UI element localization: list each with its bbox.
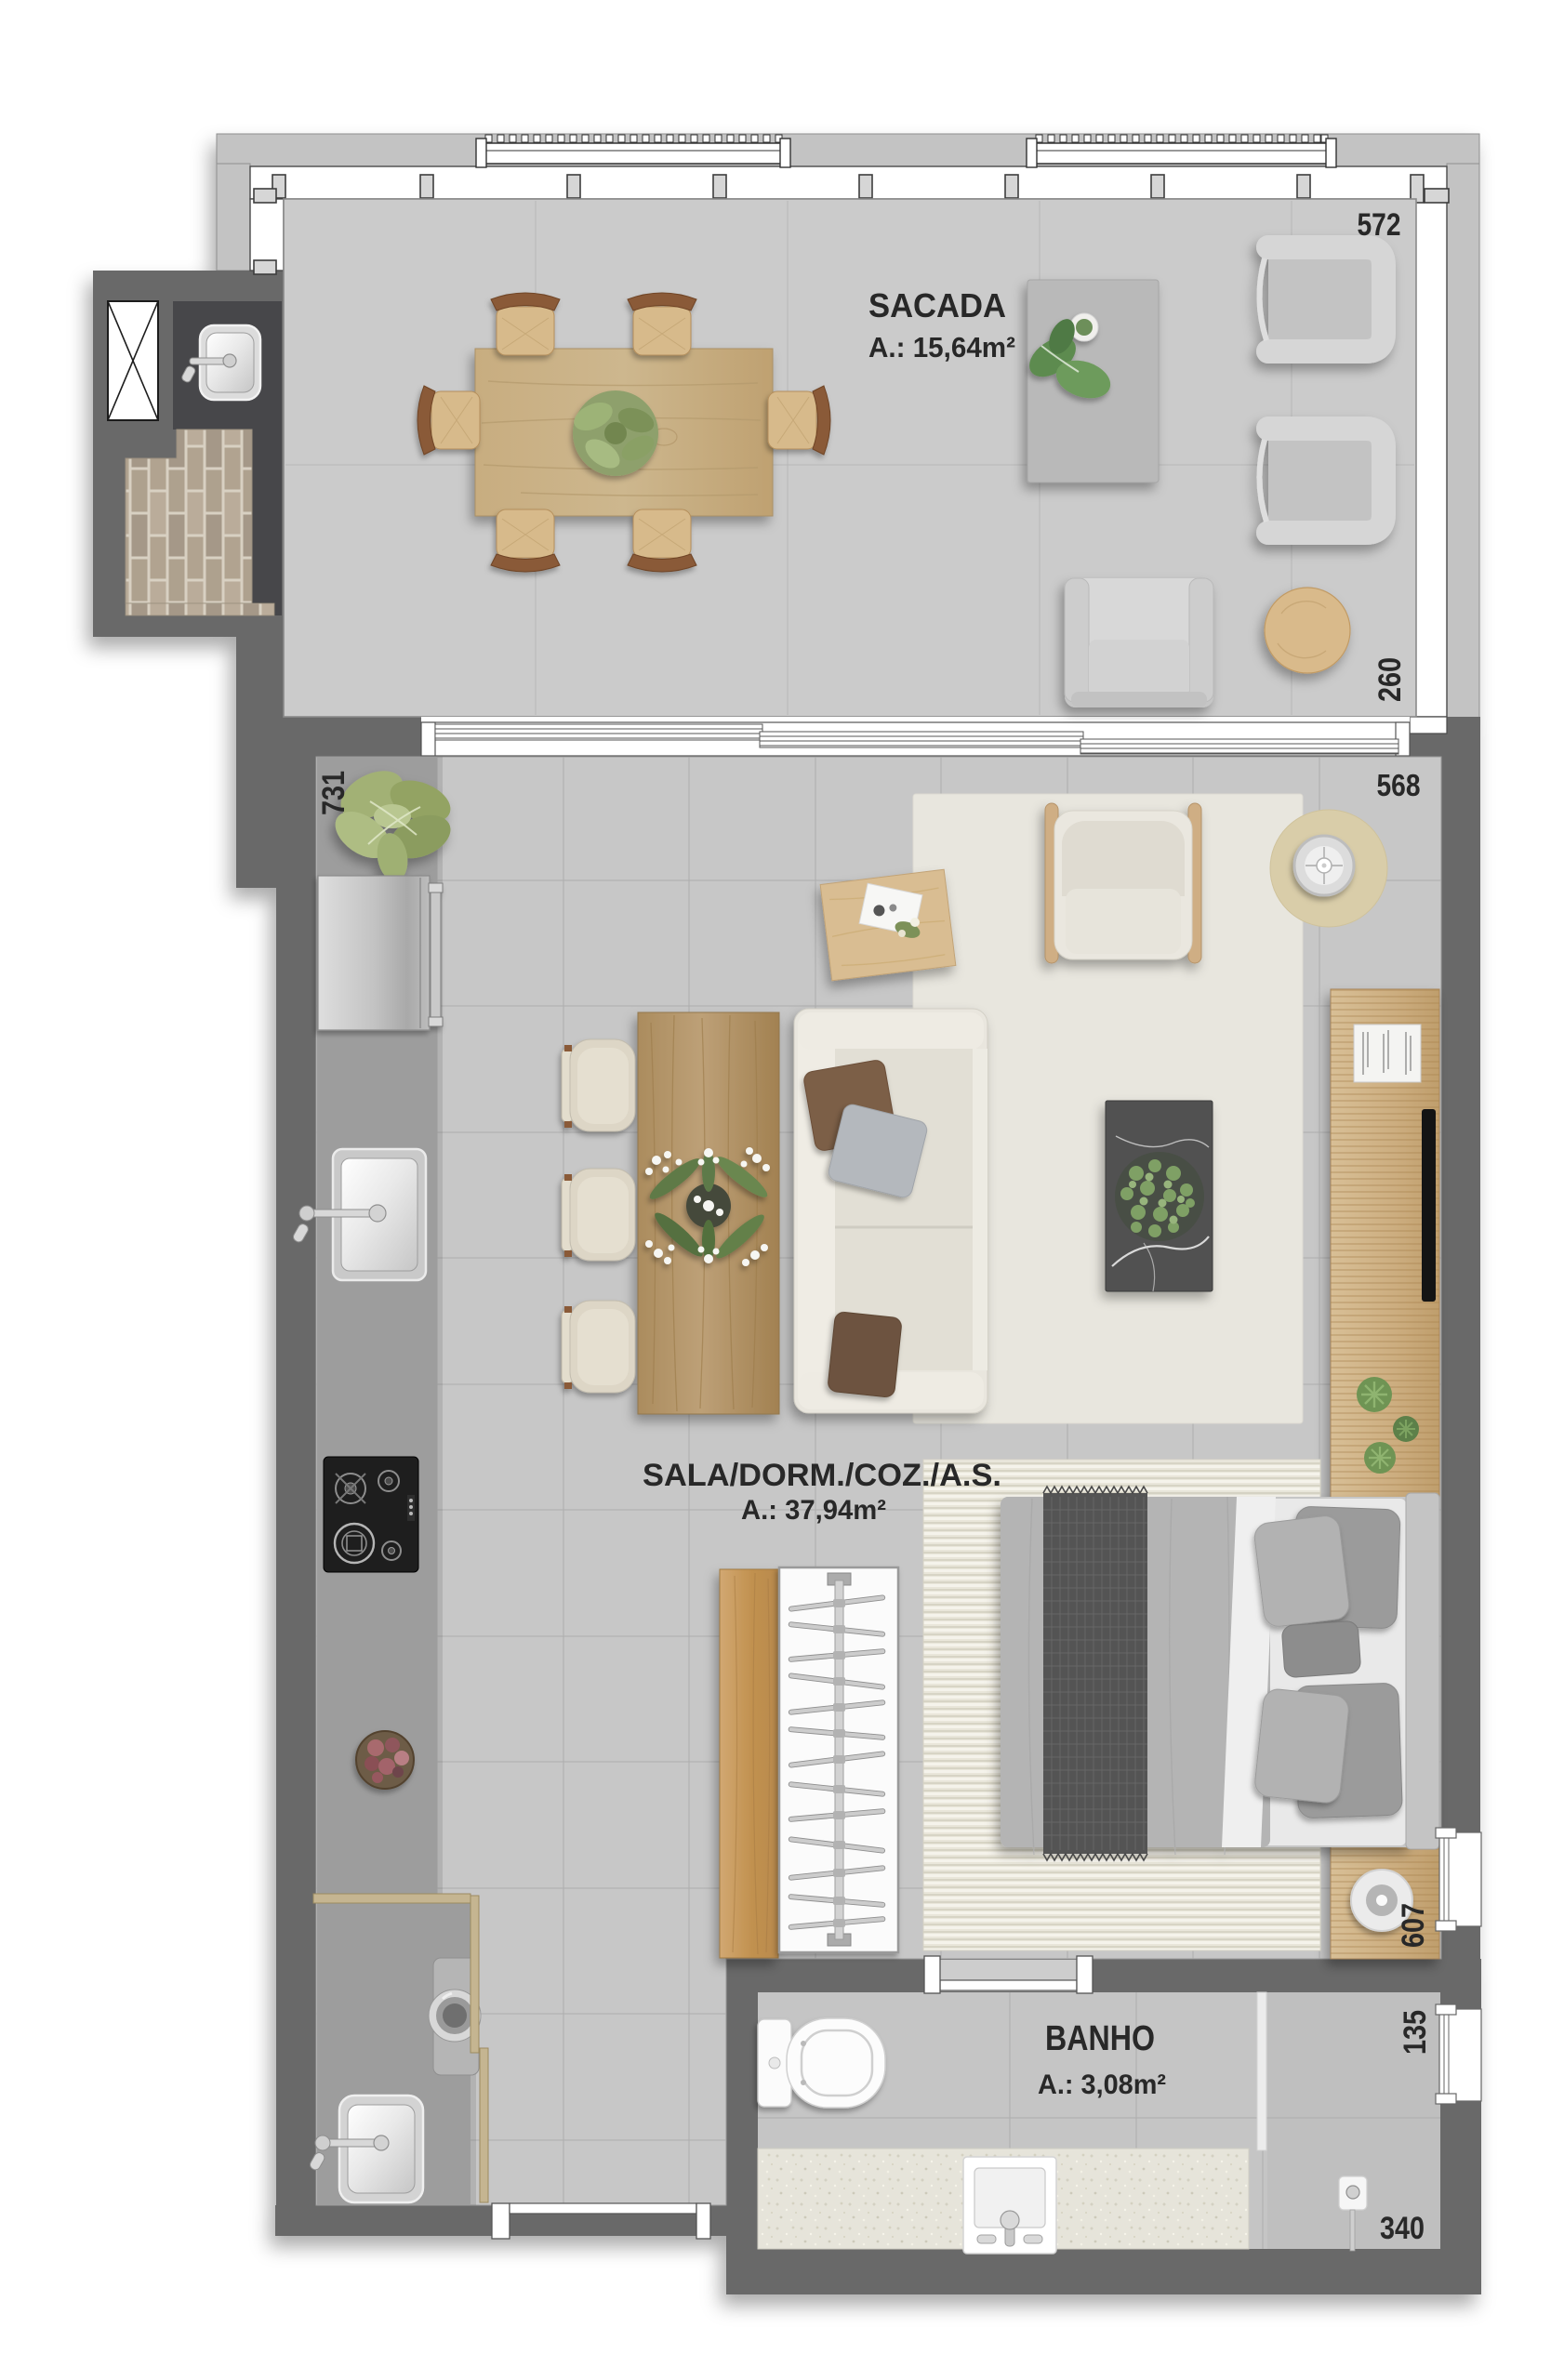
svg-text:572: 572 <box>1358 207 1401 243</box>
svg-text:SALA/DORM./COZ./A.S.: SALA/DORM./COZ./A.S. <box>643 1458 1001 1493</box>
svg-text:BANHO: BANHO <box>1045 2019 1155 2058</box>
svg-text:340: 340 <box>1380 2211 1425 2246</box>
svg-text:260: 260 <box>1372 657 1408 702</box>
svg-text:568: 568 <box>1377 768 1421 802</box>
svg-text:A.: 15,64m²: A.: 15,64m² <box>868 331 1015 364</box>
svg-text:A.: 3,08m²: A.: 3,08m² <box>1038 2069 1166 2100</box>
svg-text:731: 731 <box>316 771 351 815</box>
svg-text:A.: 37,94m²: A.: 37,94m² <box>741 1495 886 1526</box>
svg-text:607: 607 <box>1396 1903 1431 1948</box>
svg-text:135: 135 <box>1398 2010 1433 2055</box>
svg-text:SACADA: SACADA <box>868 286 1006 324</box>
